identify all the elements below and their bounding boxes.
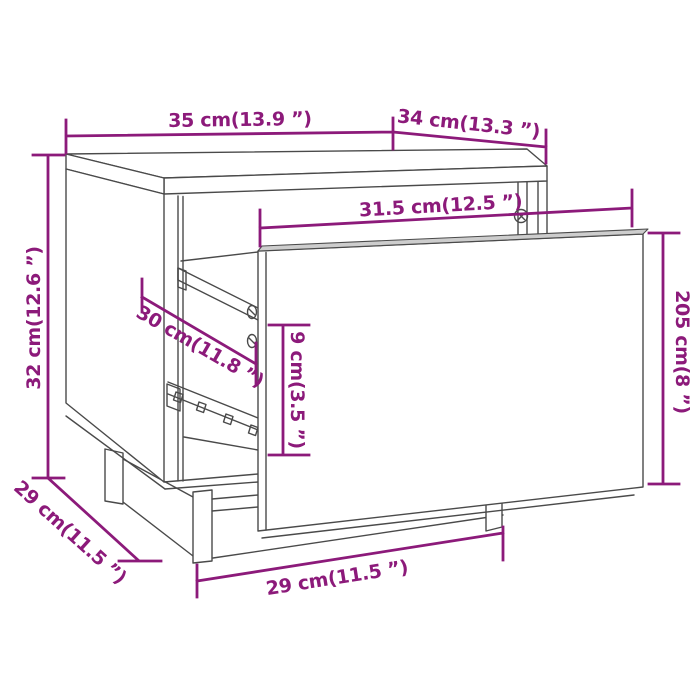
dim-label-top-width: 35 cm(13.9 ”) (168, 108, 312, 132)
drawer-box-top-edge (181, 252, 258, 261)
drawer-rail-lower (168, 382, 258, 430)
dim-top-width: 35 cm(13.9 ”) (66, 108, 393, 153)
rail-clip (224, 414, 234, 425)
dim-label-drawer-front-height: 205 cm(8 ”) (671, 290, 693, 414)
rail-clip (249, 425, 259, 436)
cavity-bottom-edge (184, 437, 258, 450)
leg-front-left (193, 490, 212, 563)
base-bottom-edge (213, 515, 503, 558)
dim-label-side-height: 32 cm(12.6 ”) (23, 246, 45, 390)
dim-side-height: 32 cm(12.6 ”) (23, 155, 64, 478)
drawer-front-panel (258, 229, 648, 538)
product-dimension-diagram: 35 cm(13.9 ”) 34 cm(13.3 ”) 31.5 cm(12.5… (0, 0, 700, 700)
drawer-front-face (258, 234, 643, 531)
dim-label-top-depth: 34 cm(13.3 ”) (396, 105, 541, 142)
dim-base-depth: 29 cm(11.5 ”) (9, 476, 161, 588)
dim-drawer-front-height: 205 cm(8 ”) (649, 233, 693, 484)
dim-label-base-width: 29 cm(11.5 ”) (264, 556, 409, 600)
drawer-rail-upper (178, 268, 258, 320)
leg-back-left (105, 449, 123, 504)
front-plinth-rail (212, 495, 258, 511)
dim-label-drawer-inner-height: 9 cm(3.5 ”) (286, 331, 308, 449)
dim-label-drawer-inner-width: 31.5 cm(12.5 ”) (358, 190, 522, 221)
